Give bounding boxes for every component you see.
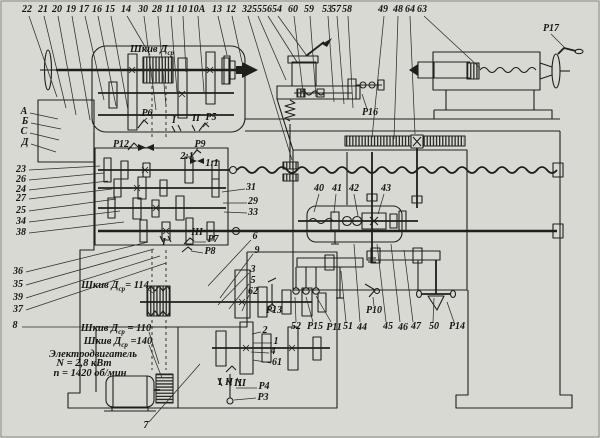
leader-22 — [29, 16, 57, 97]
handle-p5 — [199, 123, 209, 131]
part-label-33: 33 — [248, 208, 258, 218]
part-label-60: 60 — [288, 5, 298, 15]
part-label-р10: Р10 — [366, 306, 382, 316]
part-label-8: 8 — [13, 321, 18, 331]
part-label-22: 22 — [22, 5, 32, 15]
part-label-16: 16 — [92, 5, 102, 15]
leader-30 — [144, 16, 156, 110]
part-label-19: 19 — [66, 5, 76, 15]
leader-64 — [410, 16, 415, 134]
part-label-55: 55 — [252, 5, 262, 15]
part-label-р5: Р5 — [205, 113, 216, 123]
part-label-51: 51 — [343, 322, 353, 332]
leader-56 — [268, 16, 297, 62]
part-label-р4: Р4 — [258, 382, 269, 392]
leader-а — [30, 113, 58, 119]
part-label-ii: II — [225, 378, 233, 388]
leadscrew — [237, 167, 557, 173]
quill — [418, 62, 434, 78]
leader-27 — [29, 189, 112, 199]
tailstock-screw — [480, 68, 536, 73]
part-label-56: 56 — [262, 5, 272, 15]
leader-д — [31, 144, 56, 152]
workpiece-arrow — [236, 62, 258, 78]
part-label-6: 6 — [253, 232, 258, 242]
part-label-4: 4 — [271, 347, 276, 357]
leader-4 — [251, 352, 269, 353]
leader-54 — [278, 16, 307, 56]
part-label-21: 21 — [38, 5, 48, 15]
part-label-с: С — [21, 127, 28, 137]
part-label-5: 5 — [251, 276, 256, 286]
leader-51 — [341, 271, 346, 322]
leader-24 — [29, 181, 108, 190]
part-label-10: 10 — [177, 5, 187, 15]
part-label-48: 48 — [393, 5, 403, 15]
part-label-2: 2 — [263, 326, 268, 336]
part-label-р11: Р11 — [326, 323, 342, 333]
leader-49 — [372, 16, 384, 138]
part-label-р12: Р12 — [113, 140, 129, 150]
part-label-13: 13 — [212, 5, 222, 15]
part-label-37: 37 — [13, 305, 23, 315]
part-label-46: 46 — [398, 323, 408, 333]
part-label-р17: Р17 — [543, 24, 559, 34]
leader-57 — [337, 16, 344, 104]
rack-pinion — [345, 135, 465, 208]
leader-40 — [314, 194, 319, 212]
part-label-34: 34 — [16, 217, 26, 227]
part-label-ii: II — [192, 114, 200, 124]
part-label-iii: III — [234, 379, 246, 389]
part-label-59: 59 — [304, 5, 314, 15]
part-label-25: 25 — [16, 206, 26, 216]
part-label-57: 57 — [331, 5, 341, 15]
leader-р8 — [191, 251, 203, 253]
leader-5 — [229, 284, 249, 309]
part-label-52: 52 — [291, 322, 301, 332]
part-label-р9: Р9 — [194, 140, 205, 150]
leader-13 — [218, 16, 227, 55]
leader-с — [30, 133, 59, 140]
part-label-54: 54 — [272, 5, 282, 15]
crank-p17 — [558, 48, 576, 54]
tool-post-handle — [306, 42, 324, 56]
part-label-i: I — [218, 378, 222, 388]
part-label-63: 63 — [417, 5, 427, 15]
leader-р14 — [447, 302, 454, 322]
leader-б — [31, 123, 61, 129]
part-label-42: 42 — [349, 184, 359, 194]
note-шкив-дср-140: Шкив Дср =140 — [84, 337, 152, 349]
leader-55 — [258, 16, 286, 80]
part-label-7: 7 — [144, 421, 149, 431]
part-label-45: 45 — [383, 322, 393, 332]
part-label-12: 12 — [226, 5, 236, 15]
part-label-р15: Р15 — [307, 322, 323, 332]
part-label-д: Д — [22, 138, 29, 148]
part-label-50: 50 — [429, 322, 439, 332]
center-point — [409, 64, 418, 76]
leader-10 — [183, 16, 186, 72]
leader-19 — [72, 16, 90, 120]
note-n-1420-об-мин: n = 1420 об/мин — [54, 369, 127, 380]
part-label-2:1: 2:1 — [180, 152, 193, 162]
note-шкив-дср-110: Шкив Дср = 110 — [81, 324, 152, 336]
part-label-64: 64 — [405, 5, 415, 15]
part-label-р7: Р7 — [207, 235, 218, 245]
part-label-р6: Р6 — [141, 109, 152, 119]
spring — [285, 100, 295, 121]
leader-43 — [378, 194, 384, 214]
part-label-61: 61 — [272, 358, 282, 368]
leader-52 — [295, 297, 296, 322]
leader-48 — [394, 16, 398, 139]
part-label-р16: Р16 — [362, 108, 378, 118]
part-label-28: 28 — [152, 5, 162, 15]
leader-21 — [44, 16, 66, 108]
leader-31 — [222, 189, 245, 192]
leader-46 — [391, 244, 400, 322]
part-label-i: I — [162, 238, 166, 248]
part-label-39: 39 — [13, 293, 23, 303]
part-label-30: 30 — [138, 5, 148, 15]
part-label-41: 41 — [332, 184, 342, 194]
part-label-44: 44 — [357, 323, 367, 333]
part-label-20: 20 — [52, 5, 62, 15]
handle-p8 — [182, 247, 192, 252]
part-label-i: I — [172, 116, 176, 126]
part-label-27: 27 — [16, 194, 26, 204]
part-label-9: 9 — [255, 246, 260, 256]
part-label-62: 62 — [248, 287, 258, 297]
leader-р17 — [551, 34, 566, 49]
tool-post — [292, 62, 316, 86]
part-label-29: 29 — [248, 197, 258, 207]
part-label-32: 32 — [242, 5, 252, 15]
part-label-58: 58 — [342, 5, 352, 15]
leader-41 — [334, 194, 336, 213]
part-label-11: 11 — [165, 5, 174, 15]
note-шкив-дср-114: Шкив Дср= 114 — [81, 281, 149, 293]
leader-60 — [294, 16, 303, 92]
part-label-40: 40 — [314, 184, 324, 194]
part-label-1:1: 1:1 — [205, 159, 218, 169]
part-label-49: 49 — [378, 5, 388, 15]
leader-17 — [85, 16, 104, 100]
leader-23 — [29, 166, 100, 170]
tailstock — [409, 48, 583, 119]
part-label-31: 31 — [246, 183, 256, 193]
handle-p12 — [128, 143, 138, 150]
leader-шкив-дср-140 — [149, 345, 162, 378]
part-label-47: 47 — [411, 322, 421, 332]
tailstock-handwheel — [552, 54, 560, 88]
part-label-43: 43 — [381, 184, 391, 194]
part-label-15: 15 — [105, 5, 115, 15]
leader-12 — [232, 16, 242, 62]
leader-42 — [354, 194, 358, 216]
part-label-3: 3 — [251, 265, 256, 275]
part-label-р13: Р13 — [266, 306, 282, 316]
part-label-36: 36 — [13, 267, 23, 277]
leader-44 — [354, 244, 360, 322]
leader-47 — [404, 250, 413, 322]
part-label-р3: Р3 — [257, 393, 268, 403]
leader-25 — [29, 199, 116, 211]
part-label-17: 17 — [79, 5, 89, 15]
leader-58 — [348, 16, 353, 108]
leader-р3 — [234, 398, 256, 400]
leader-26 — [29, 173, 104, 180]
part-label-14: 14 — [121, 5, 131, 15]
part-label-р14: Р14 — [449, 322, 465, 332]
leader-10а — [198, 16, 204, 92]
part-label-38: 38 — [16, 228, 26, 238]
part-label-35: 35 — [13, 280, 23, 290]
leader-63 — [424, 16, 480, 68]
part-label-iii: III — [191, 228, 203, 238]
part-label-10а: 10А — [189, 5, 206, 15]
leader-32 — [248, 16, 292, 160]
leader-15 — [111, 16, 128, 110]
leader-50 — [433, 298, 434, 322]
leader-34 — [29, 211, 120, 222]
note-шкив-дср: Шкив Дср — [130, 45, 174, 57]
part-label-р8: Р8 — [204, 247, 215, 257]
leader-53 — [328, 16, 334, 102]
lathe-kinematic-diagram: 22212019171615143028111010А1312325556546… — [0, 0, 600, 438]
handle-p6 — [138, 120, 148, 128]
